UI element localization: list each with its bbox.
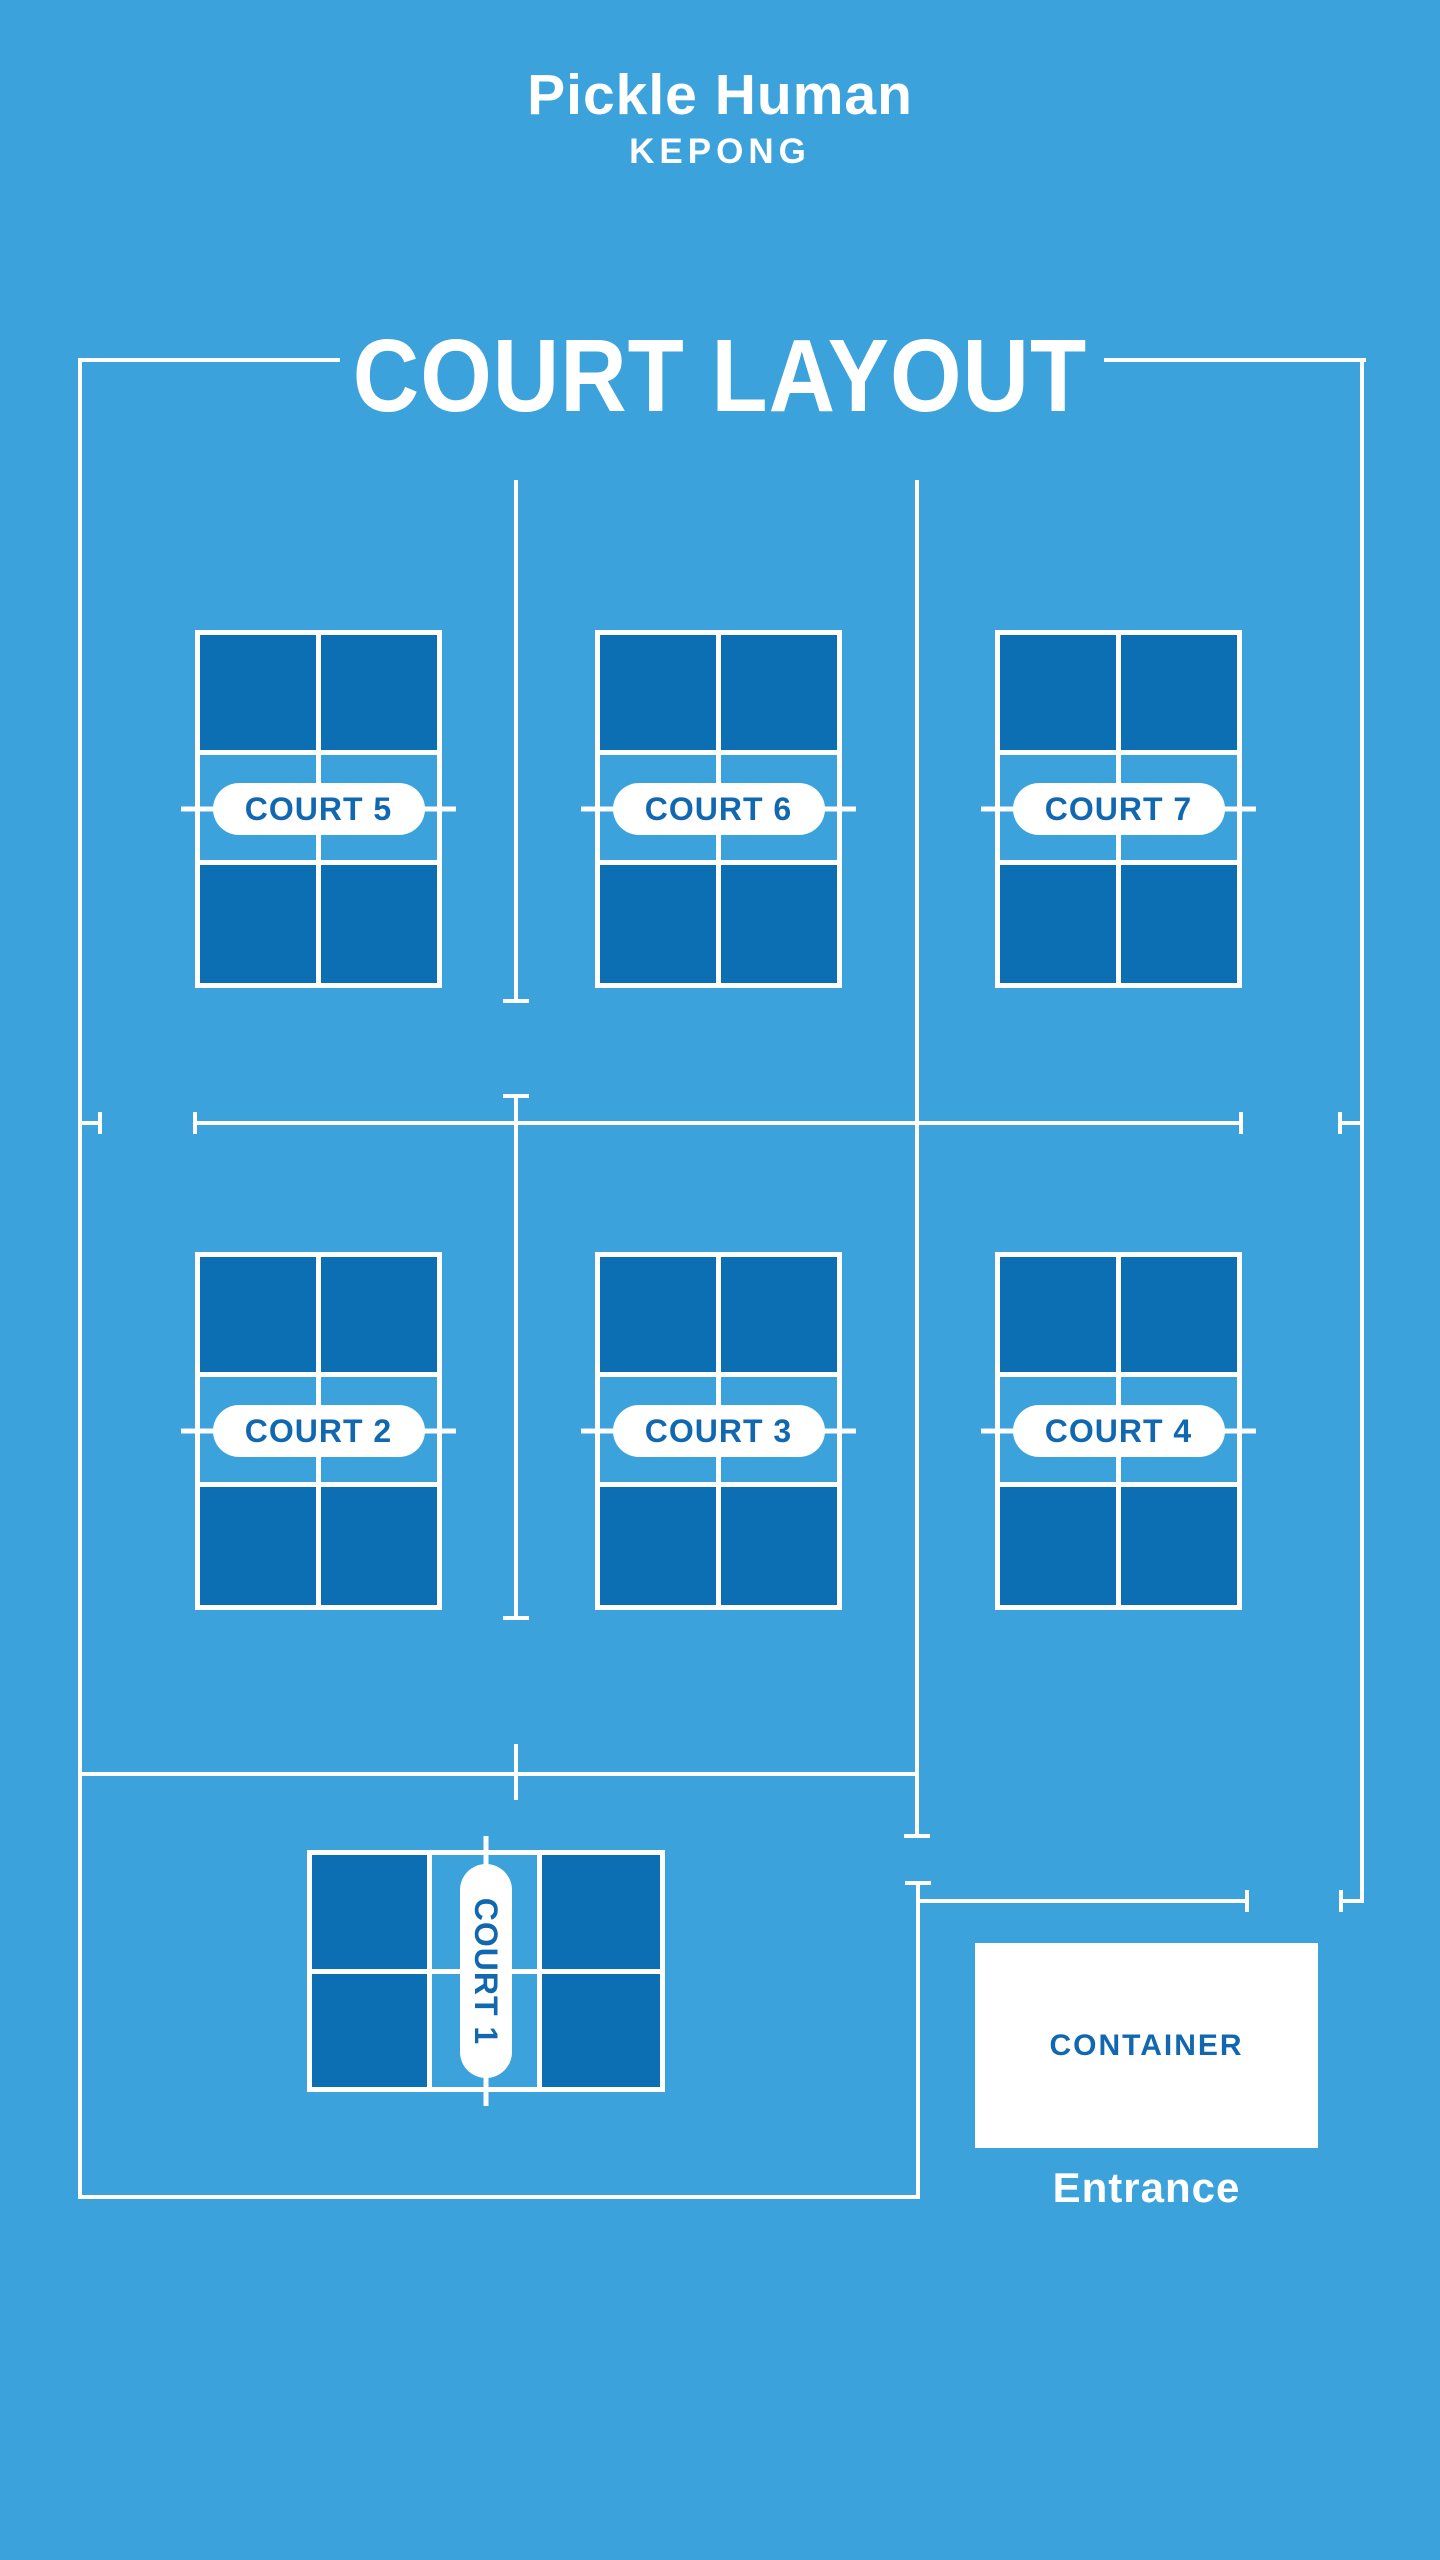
court-3: COURT 3 (595, 1252, 842, 1610)
court-5-service-box (200, 635, 316, 750)
court-7-label-pill: COURT 7 (1013, 783, 1225, 835)
court-6-label-pill: COURT 6 (613, 783, 825, 835)
boundary-right-line (1360, 358, 1364, 1903)
divider-main-cap-left (193, 1112, 197, 1134)
court-5: COURT 5 (195, 630, 442, 988)
court-4-label: COURT 4 (1045, 1413, 1192, 1450)
vertical-courts-2-3-cap-bottom (503, 1616, 529, 1620)
boundary-top-left-line (78, 358, 340, 362)
court-7: COURT 7 (995, 630, 1242, 988)
divider-stub-right (1338, 1121, 1364, 1125)
court-2-service-box (200, 1257, 316, 1372)
court-6-service-box (600, 865, 716, 983)
court-4-service-box (1000, 1487, 1116, 1605)
court-2-label: COURT 2 (245, 1413, 392, 1450)
court-5-service-box (321, 865, 437, 983)
container-horizontal-line (916, 1899, 1249, 1903)
vertical-courts-6-7-cap (904, 1834, 930, 1838)
boundary-left-line (78, 358, 82, 2199)
divider-main-line (193, 1121, 1243, 1125)
divider-stub-left-cap (98, 1112, 102, 1134)
court-3-service-box (721, 1257, 837, 1372)
court-2: COURT 2 (195, 1252, 442, 1610)
brand-title: Pickle Human (0, 62, 1440, 128)
court-7-service-box (1121, 865, 1237, 983)
boundary-top-right-line (1104, 358, 1366, 362)
court-5-label: COURT 5 (245, 791, 392, 828)
court-3-label-pill: COURT 3 (613, 1405, 825, 1457)
court-7-label: COURT 7 (1045, 791, 1192, 828)
court-1-service-box (312, 1855, 427, 1969)
court-2-service-box (321, 1257, 437, 1372)
court-1-label: COURT 1 (468, 1897, 505, 2044)
entrance-hook-stub (1341, 1899, 1364, 1903)
court-6-service-box (721, 865, 837, 983)
vertical-courts-5-6-cap (503, 999, 529, 1003)
court-1: COURT 1 (307, 1850, 665, 2092)
court-7-service-box (1000, 635, 1116, 750)
divider-main-cap-right (1239, 1112, 1243, 1134)
court-3-label: COURT 3 (645, 1413, 792, 1450)
court-7-service-box (1000, 865, 1116, 983)
court-6-service-box (721, 635, 837, 750)
court-5-label-pill: COURT 5 (213, 783, 425, 835)
container-horizontal-cap (1245, 1890, 1249, 1912)
court-2-label-pill: COURT 2 (213, 1405, 425, 1457)
vertical-courts-6-7 (915, 480, 919, 1838)
court-1-label-pill: COURT 1 (460, 1864, 512, 2078)
vertical-courts-5-6 (514, 480, 518, 1003)
court-layout-poster: Pickle Human KEPONG COURT LAYOUT COURT 5 (0, 0, 1440, 2560)
container-vertical-line (916, 1883, 920, 2199)
court-1-service-box (312, 1974, 427, 2088)
court-5-service-box (200, 865, 316, 983)
entrance-label: Entrance (975, 2164, 1318, 2212)
court-2-service-box (200, 1487, 316, 1605)
court-3-service-box (600, 1487, 716, 1605)
court-7-service-box (1121, 635, 1237, 750)
court-6: COURT 6 (595, 630, 842, 988)
walkway-line (78, 1772, 919, 1776)
court-1-service-box (542, 1974, 660, 2088)
court-5-service-box (321, 635, 437, 750)
brand-location: KEPONG (0, 132, 1440, 172)
court-6-service-box (600, 635, 716, 750)
page-title: COURT LAYOUT (0, 318, 1440, 436)
court-4-service-box (1121, 1487, 1237, 1605)
container-box: CONTAINER (975, 1943, 1318, 2148)
boundary-bottom-line (78, 2195, 920, 2199)
court-4-service-box (1121, 1257, 1237, 1372)
court-4-service-box (1000, 1257, 1116, 1372)
court-4: COURT 4 (995, 1252, 1242, 1610)
container-label: CONTAINER (1049, 2029, 1243, 2063)
walkway-cross-tick (514, 1744, 518, 1800)
court-2-service-box (321, 1487, 437, 1605)
court-6-label: COURT 6 (645, 791, 792, 828)
court-3-service-box (721, 1487, 837, 1605)
court-1-service-box (542, 1855, 660, 1969)
court-3-service-box (600, 1257, 716, 1372)
court-4-label-pill: COURT 4 (1013, 1405, 1225, 1457)
vertical-courts-2-3 (514, 1096, 518, 1620)
